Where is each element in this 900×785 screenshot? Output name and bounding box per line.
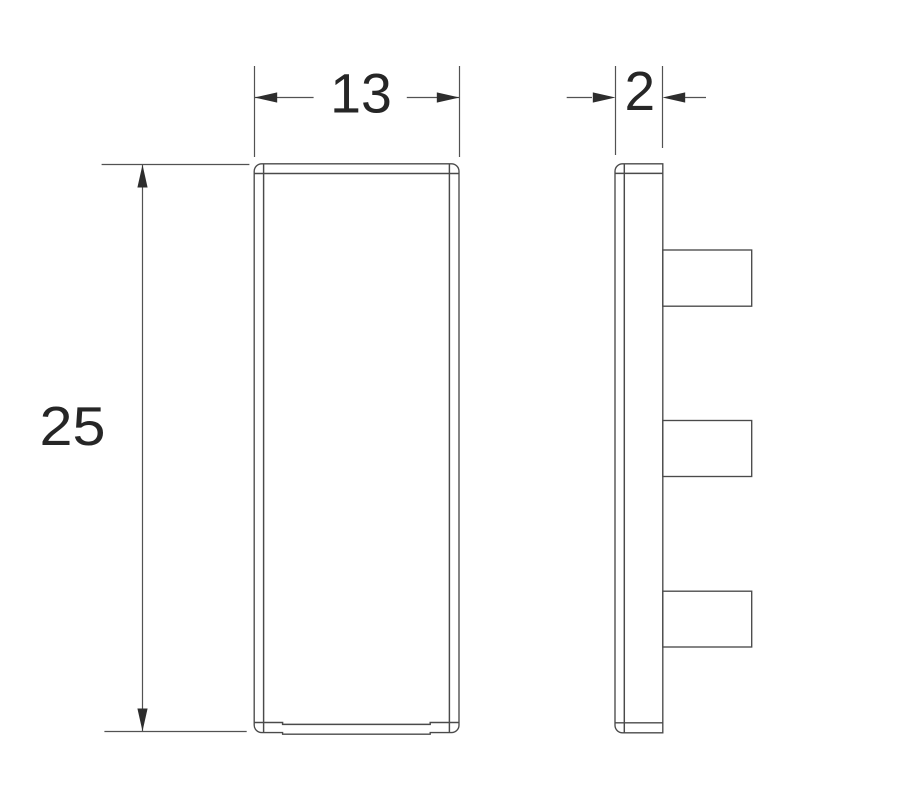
- svg-text:2: 2: [625, 60, 656, 122]
- svg-text:13: 13: [330, 63, 392, 125]
- svg-text:25: 25: [40, 395, 106, 457]
